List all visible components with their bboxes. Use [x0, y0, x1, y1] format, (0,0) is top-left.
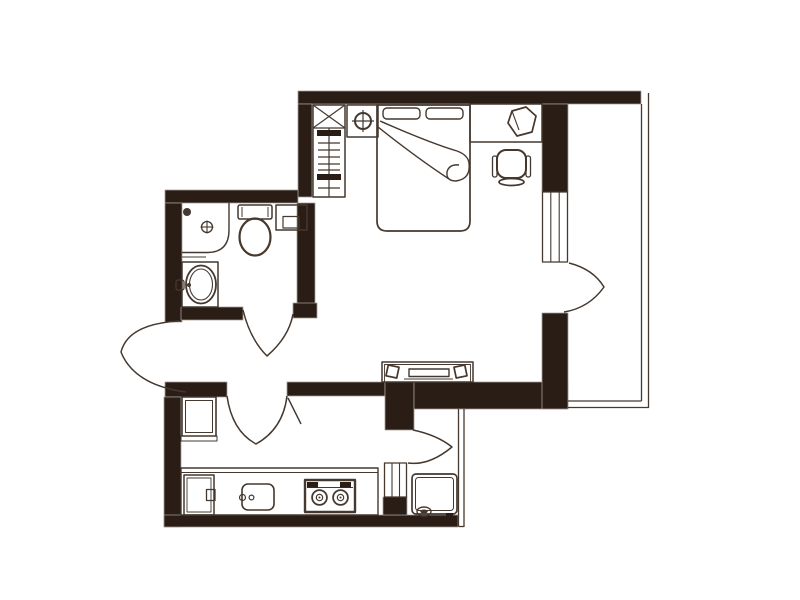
bathroom-south-wall	[181, 307, 243, 320]
entry-door-swing	[121, 321, 186, 392]
bedroom-east-wall-upper	[542, 104, 568, 192]
desk-chair-back	[499, 179, 524, 186]
bed-duvet-fold-upper	[380, 121, 469, 163]
kitchen-sink-drain-dot	[249, 495, 254, 500]
bathroom-se-pier	[293, 303, 317, 318]
vanity-basin-inner	[190, 269, 213, 300]
wardrobe-hanger-thick-2	[317, 174, 341, 180]
bed-duvet-fold-curl	[447, 163, 469, 181]
top-wall	[298, 91, 641, 104]
wardrobe-hanger-thick-1	[317, 130, 341, 136]
windows-layer	[385, 192, 568, 497]
desk-decor-fold	[512, 111, 519, 130]
burner-left-dot	[319, 497, 321, 499]
bathroom-furniture-layer	[176, 203, 307, 307]
desk	[470, 104, 542, 142]
nook-sill-wall	[383, 497, 407, 515]
tv-speaker-left	[386, 365, 399, 378]
tv-screen	[409, 369, 449, 377]
burner-right-dot	[340, 497, 342, 499]
stove-cap-right	[340, 482, 351, 488]
bedroom-south-wall-block	[385, 382, 414, 430]
kitchen-west-wall	[164, 397, 181, 527]
walls-layer	[164, 91, 641, 527]
fridge-vent-fill	[420, 510, 428, 514]
nook-door-swing	[408, 430, 452, 463]
bathroom-door-swing	[243, 310, 293, 356]
bathroom-east-wall	[297, 203, 315, 305]
kitchen-south-wall	[164, 515, 458, 527]
base-cabinet-inner	[187, 478, 211, 512]
shower-head	[183, 208, 191, 216]
kitchen-sink	[242, 484, 274, 510]
balcony-door-swing	[564, 263, 604, 312]
toilet-bowl	[240, 219, 271, 256]
bathroom-north-wall	[165, 190, 298, 203]
washing-machine	[182, 397, 216, 436]
fridge-inner	[416, 478, 454, 511]
bed-pillow-right	[426, 108, 463, 119]
desk-chair-seat	[497, 150, 526, 178]
doors-layer	[121, 263, 604, 463]
fridge-chip	[446, 513, 453, 518]
kitchen-furniture-layer	[181, 397, 457, 518]
vanity-faucet-dot	[187, 283, 191, 287]
bedroom-furniture-layer	[313, 104, 542, 382]
bedroom-door-leaf	[288, 398, 301, 424]
stove-cap-left	[307, 482, 318, 488]
bed-pillow-left	[383, 108, 420, 119]
bathroom-west-wall	[165, 203, 182, 322]
bedroom-east-window-frame	[543, 192, 568, 262]
toilet-tank	[238, 205, 272, 219]
floor-plan	[0, 0, 800, 600]
bedroom-east-wall-lower	[542, 313, 568, 409]
bedroom-west-wall	[298, 104, 312, 197]
kitchen-door-swing	[227, 396, 287, 444]
floor-plan-svg	[0, 0, 800, 600]
bed-outline	[377, 105, 470, 231]
washing-machine-inner	[186, 401, 213, 433]
base-cabinet	[184, 475, 214, 515]
tv-speaker-right	[454, 365, 467, 378]
nook-window-frame	[385, 463, 407, 497]
bedroom-south-wall-west	[287, 382, 385, 396]
